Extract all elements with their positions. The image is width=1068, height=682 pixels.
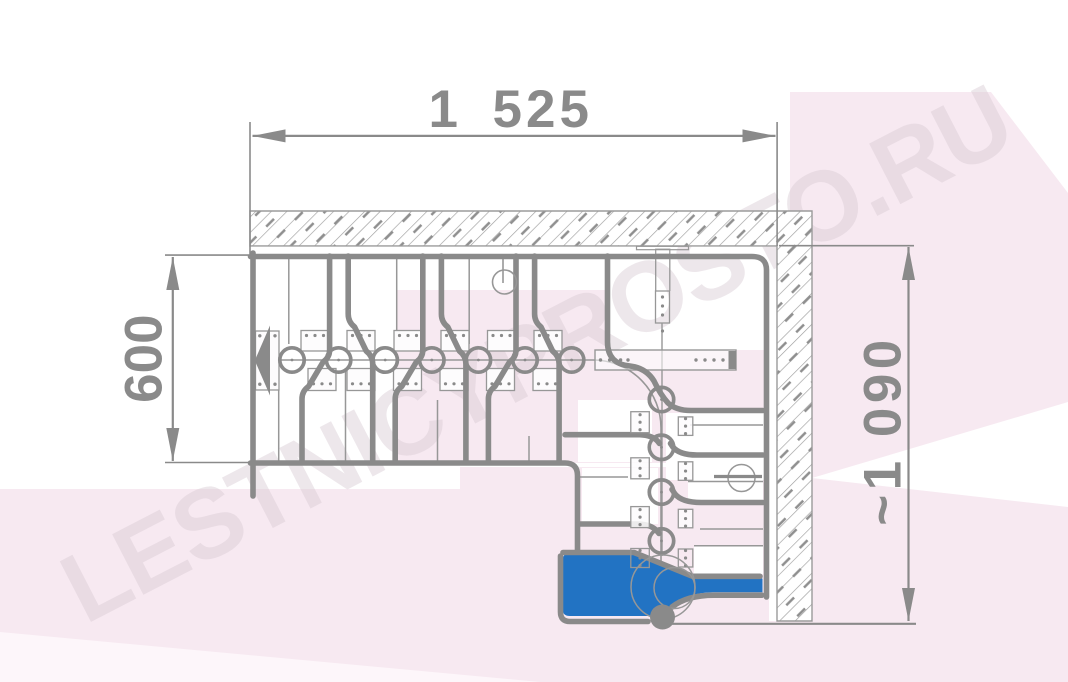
svg-text:600: 600 xyxy=(115,314,174,402)
svg-text:1: 1 xyxy=(428,80,457,139)
svg-text:~1 090: ~1 090 xyxy=(854,335,913,526)
svg-text:525: 525 xyxy=(493,80,593,139)
